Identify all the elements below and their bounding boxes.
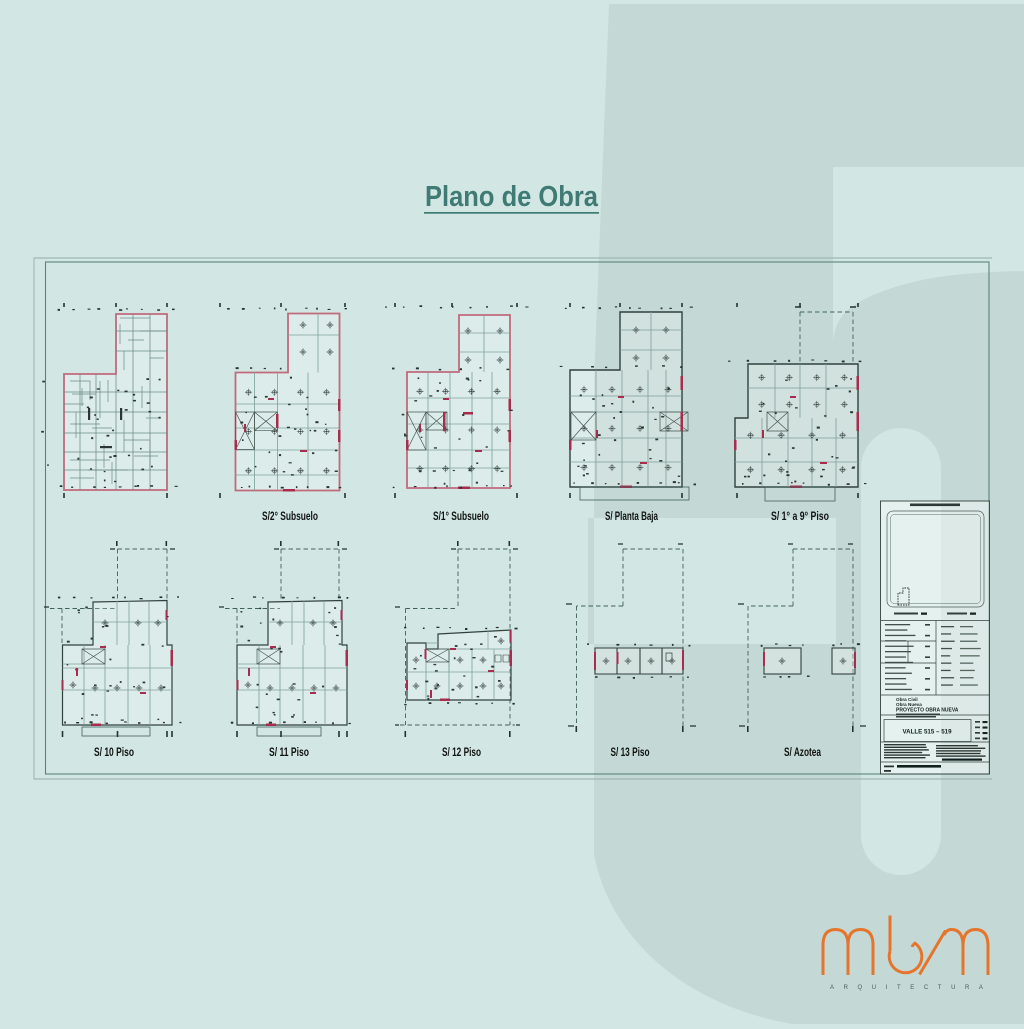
- svg-text:S/ Azotea: S/ Azotea: [784, 745, 821, 759]
- svg-text:ARQUITECTURA: ARQUITECTURA: [830, 985, 993, 991]
- svg-text:S/ 13 Piso: S/ 13 Piso: [611, 745, 650, 759]
- svg-text:S/2° Subsuelo: S/2° Subsuelo: [262, 509, 318, 523]
- svg-text:Obra Nueva: Obra Nueva: [896, 702, 922, 707]
- svg-text:PROYECTO OBRA NUEVA: PROYECTO OBRA NUEVA: [896, 708, 959, 714]
- svg-text:S/ 12 Piso: S/ 12 Piso: [442, 745, 481, 759]
- svg-text:VALLE 515 – 519: VALLE 515 – 519: [902, 729, 952, 736]
- svg-text:S/ 11 Piso: S/ 11 Piso: [269, 745, 309, 759]
- svg-text:S/1° Subsuelo: S/1° Subsuelo: [433, 509, 489, 523]
- svg-text:Plano de Obra: Plano de Obra: [425, 181, 599, 213]
- svg-text:S/ 1° a 9° Piso: S/ 1° a 9° Piso: [771, 509, 829, 523]
- svg-text:S/ Planta Baja: S/ Planta Baja: [605, 509, 658, 523]
- svg-text:S/ 10 Piso: S/ 10 Piso: [94, 745, 134, 759]
